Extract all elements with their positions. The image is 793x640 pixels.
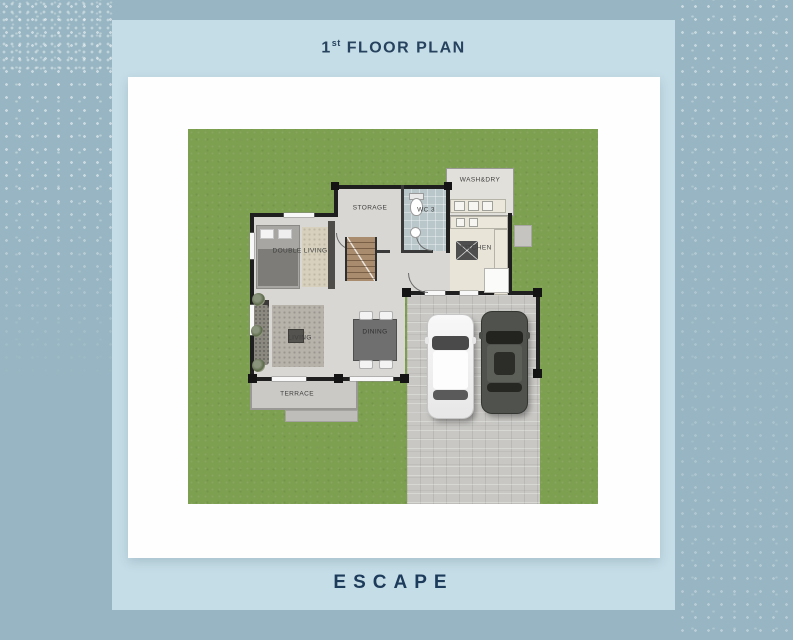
- pillow-icon: [278, 229, 292, 239]
- wall-post: [331, 182, 339, 190]
- chair-icon: [379, 360, 393, 369]
- plant-icon: [252, 293, 265, 306]
- wall-post: [334, 374, 343, 383]
- washer-icon: [454, 201, 465, 211]
- wall-post: [444, 182, 452, 190]
- stove-icon: [469, 218, 478, 227]
- plant-icon: [251, 325, 263, 337]
- wall-segment: [334, 185, 450, 189]
- entry-step: [484, 268, 509, 293]
- kitchen-door-opening: [460, 291, 478, 295]
- windshield: [432, 336, 469, 350]
- wall-wc-left: [401, 185, 404, 253]
- brand-name: ESCAPE: [112, 572, 675, 594]
- pillow-icon: [260, 229, 274, 239]
- content-panel: 1st FLOOR PLAN: [112, 20, 675, 610]
- wall-post: [248, 374, 257, 383]
- chair-icon: [379, 311, 393, 320]
- staircase: [345, 237, 377, 281]
- car-mirror-icon: [425, 337, 429, 344]
- chair-icon: [359, 360, 373, 369]
- dining-table: [353, 319, 397, 361]
- dryer-icon: [468, 201, 479, 211]
- title-number: 1: [321, 39, 331, 56]
- wall-post: [402, 288, 411, 297]
- rear-window: [487, 383, 522, 392]
- rear-window: [433, 390, 468, 400]
- window: [250, 233, 254, 259]
- plant-icon: [252, 359, 265, 372]
- title-text: FLOOR PLAN: [347, 39, 466, 56]
- page: { "header": { "title_number": "1", "titl…: [0, 0, 793, 640]
- floor-plan: DOUBLE LIVING STORAGE WC 3 WASH&DRY KITC…: [188, 129, 598, 504]
- page-title: 1st FLOOR PLAN: [112, 38, 675, 57]
- daybed-blanket: [258, 249, 298, 286]
- window: [284, 213, 314, 217]
- dot-pattern-topleft: [0, 0, 114, 72]
- dark-car: [482, 312, 527, 413]
- dot-pattern-right: [676, 0, 793, 640]
- front-door-opening: [425, 291, 445, 295]
- laundry-sink-icon: [482, 201, 493, 211]
- room-label-double-living: DOUBLE LIVING: [272, 248, 327, 255]
- wc-sink-icon: [410, 227, 421, 238]
- room-label-terrace: TERRACE: [280, 391, 314, 398]
- car-mirror-icon: [526, 332, 530, 339]
- window: [350, 377, 393, 381]
- sunroof: [494, 352, 515, 375]
- wall-segment: [536, 291, 540, 376]
- room-label-living: LIVING: [288, 335, 312, 342]
- windshield: [486, 331, 523, 344]
- media-console: [328, 221, 335, 289]
- room-label-kitchen: KITCHEN: [460, 245, 491, 252]
- chair-icon: [359, 311, 373, 320]
- dot-pattern-left: [0, 0, 114, 480]
- car-mirror-icon: [472, 337, 476, 344]
- room-label-storage: STORAGE: [353, 205, 387, 212]
- room-label-wash-dry: WASH&DRY: [460, 177, 500, 184]
- wall-post: [400, 374, 409, 383]
- floor-plan-card: DOUBLE LIVING STORAGE WC 3 WASH&DRY KITC…: [128, 77, 660, 558]
- terrace-step: [285, 410, 358, 422]
- room-label-dining: DINING: [362, 329, 387, 336]
- wall-post: [533, 288, 542, 297]
- window: [272, 377, 306, 381]
- car-roof: [433, 351, 468, 389]
- kitchen-sink-icon: [456, 218, 465, 227]
- wall-post: [533, 369, 542, 378]
- white-car: [428, 315, 473, 418]
- side-pad: [514, 225, 532, 247]
- title-ordinal: st: [332, 38, 341, 48]
- car-mirror-icon: [479, 332, 483, 339]
- room-label-wc3: WC 3: [417, 207, 435, 214]
